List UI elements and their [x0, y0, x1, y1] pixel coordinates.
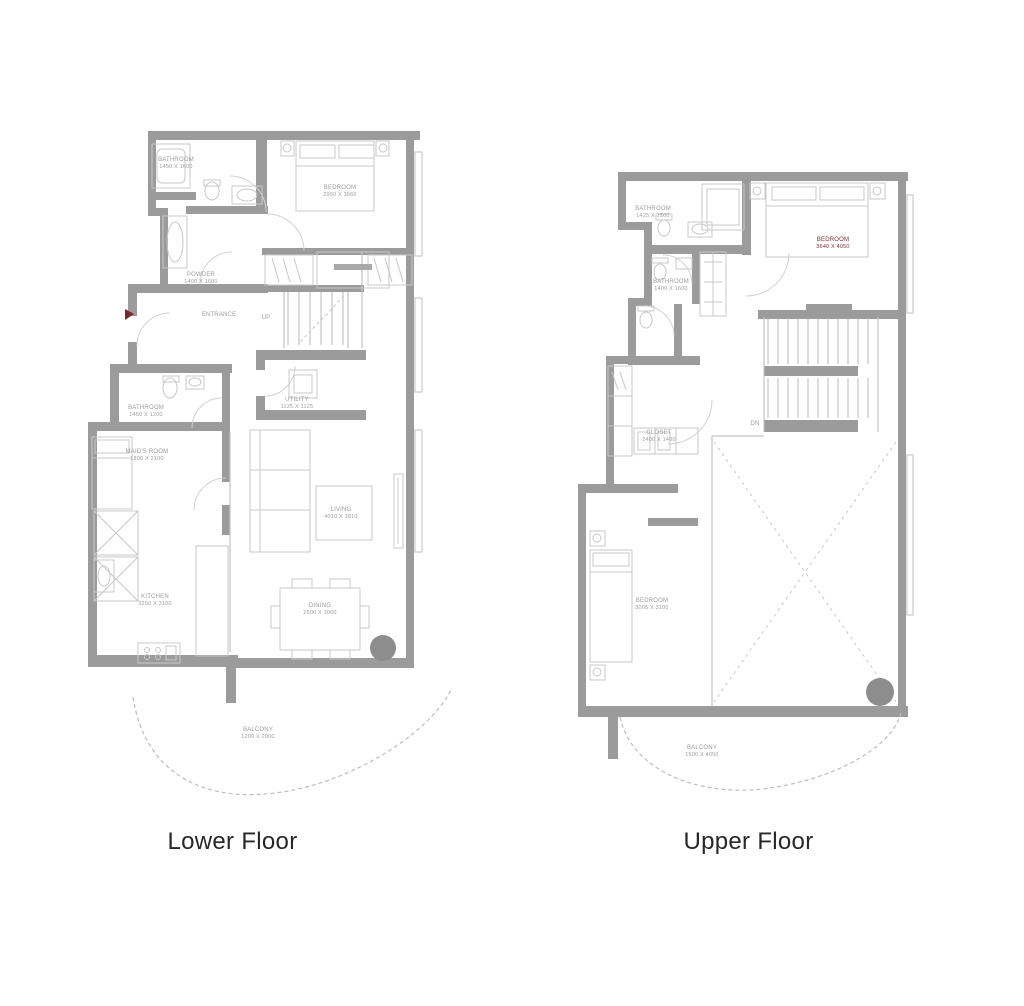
window-icon: [415, 298, 422, 392]
upper-floor-caption: Upper Floor: [676, 828, 821, 856]
room-label-upper-balcony: BALCONY 1500 X 4050: [667, 744, 737, 760]
toilet-icon: [652, 258, 668, 280]
upper-balcony-outline: [620, 713, 901, 790]
upper-floor-plan: [578, 172, 913, 790]
room-label-upper-bathroom1: BATHROOM 1425 X 1500: [618, 205, 688, 221]
room-name: POWDER: [166, 271, 236, 279]
toilet-icon: [204, 180, 220, 200]
stairs-direction: DN: [744, 420, 766, 428]
room-dims: 1450 X 1600: [141, 164, 211, 171]
room-dims: 3250 X 3100: [120, 601, 190, 608]
upper-windows: [907, 195, 913, 615]
room-name: UTILITY: [262, 396, 332, 404]
room-dims: 1200 X 2000: [223, 734, 293, 741]
bed-lower-bedroom: [281, 141, 389, 211]
room-dims: 2950 X 3660: [305, 192, 375, 199]
room-name: BEDROOM: [798, 236, 868, 244]
room-label-lower-kitchen: KITCHEN 3250 X 3100: [120, 593, 190, 609]
window-icon: [415, 430, 422, 552]
room-name: BALCONY: [223, 726, 293, 734]
sink-icon: [186, 376, 204, 389]
lower-furniture: [92, 141, 412, 663]
room-dims: 3005 X 3100: [617, 605, 687, 612]
room-label-upper-bedroom2: BEDROOM 3640 X 4050: [798, 236, 868, 252]
room-name: DINING: [285, 602, 355, 610]
window-icon: [907, 195, 913, 313]
floorplan-canvas: BATHROOM 1450 X 1600 BEDROOM 2950 X 3660…: [0, 0, 1024, 1006]
shower-icon: [702, 184, 744, 230]
room-name: ENTRANCE: [184, 311, 254, 319]
room-name: CLOSET: [624, 429, 694, 437]
room-label-lower-bathroom2: BATHROOM 1450 X 1200: [111, 404, 181, 420]
room-dims: 3640 X 4050: [798, 244, 868, 251]
room-dims: 2500 X 3060: [285, 610, 355, 617]
room-label-upper-bedroom3: BEDROOM 3005 X 3100: [617, 597, 687, 613]
room-label-lower-maids-room: MAID'S ROOM 1800 X 2100: [112, 448, 182, 464]
stairs-down-label: DN: [744, 420, 766, 428]
toilet-icon: [163, 376, 179, 398]
column-icon: [370, 635, 396, 661]
room-name: BEDROOM: [305, 184, 375, 192]
void-cross-lines: [714, 442, 896, 702]
dining-table-icon: [271, 579, 369, 659]
room-name: BALCONY: [667, 744, 737, 752]
room-label-upper-closet: CLOSET 2400 X 1400: [624, 429, 694, 445]
room-dims: 1800 X 2100: [112, 456, 182, 463]
wardrobe-icon: [94, 511, 138, 601]
lower-floor-caption: Lower Floor: [160, 828, 305, 856]
room-dims: 1400 X 1600: [636, 286, 706, 293]
room-name: BATHROOM: [111, 404, 181, 412]
kitchen-counter: [196, 546, 228, 656]
toilet-icon: [638, 306, 654, 328]
room-dims: 1425 X 1500: [618, 213, 688, 220]
room-dims: 2400 X 1400: [624, 437, 694, 444]
upper-walls: [578, 172, 908, 759]
room-label-upper-bathroom2: BATHROOM 1400 X 1600: [636, 278, 706, 294]
room-dims: 1400 X 1600: [166, 279, 236, 286]
room-label-lower-powder: POWDER 1400 X 1600: [166, 271, 236, 287]
room-dims: 1125 X 1125: [262, 404, 332, 411]
room-dims: 1450 X 1200: [111, 412, 181, 419]
room-name: BATHROOM: [636, 278, 706, 286]
room-name: MAID'S ROOM: [112, 448, 182, 456]
room-label-lower-dining: DINING 2500 X 3060: [285, 602, 355, 618]
tv-unit-icon: [394, 474, 403, 548]
room-dims: 1500 X 4050: [667, 752, 737, 759]
window-icon: [907, 455, 913, 615]
room-label-lower-balcony: BALCONY 1200 X 2000: [223, 726, 293, 742]
room-name: LIVING: [306, 506, 376, 514]
washer-icon: [289, 370, 317, 398]
column-icon: [866, 678, 894, 706]
lower-windows: [415, 152, 422, 552]
room-name: BATHROOM: [618, 205, 688, 213]
window-icon: [415, 152, 422, 256]
room-dims: 4010 X 3810: [306, 514, 376, 521]
sink-icon: [688, 222, 712, 237]
stairs-direction: UP: [256, 314, 276, 322]
room-label-lower-bathroom1: BATHROOM 1450 X 1600: [141, 156, 211, 172]
stairs-up-label: UP: [256, 314, 276, 322]
room-name: KITCHEN: [120, 593, 190, 601]
room-label-lower-bedroom: BEDROOM 2950 X 3660: [305, 184, 375, 200]
room-name: BATHROOM: [141, 156, 211, 164]
room-label-lower-utility: UTILITY 1125 X 1125: [262, 396, 332, 412]
room-name: BEDROOM: [617, 597, 687, 605]
tv-console: [334, 264, 372, 270]
floorplan-drawing: [0, 0, 1024, 1006]
room-label-lower-living: LIVING 4010 X 3810: [306, 506, 376, 522]
sofa-icon: [250, 430, 310, 552]
lower-stairs: [288, 292, 344, 345]
room-label-lower-entrance: ENTRANCE: [184, 311, 254, 319]
